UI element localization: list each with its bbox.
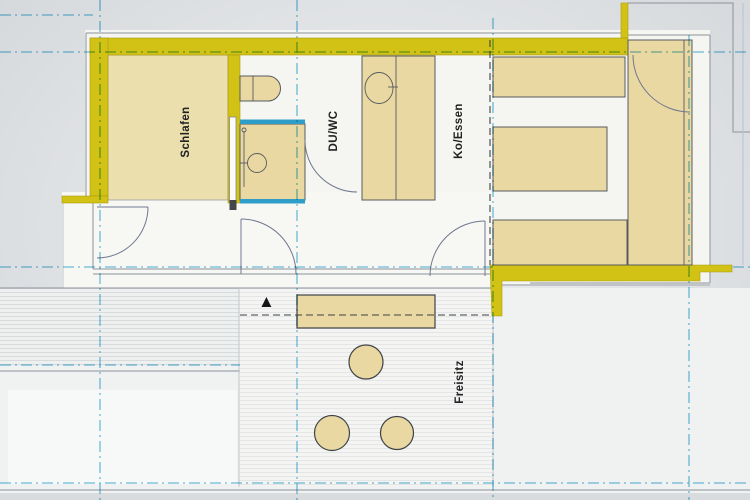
wall-left-stub <box>62 196 108 203</box>
door-arc-corridor-mid <box>241 219 296 274</box>
shower-edge-top <box>240 120 305 125</box>
shower-edge-bottom <box>240 199 305 204</box>
wardrobe-strip <box>628 40 692 265</box>
bathroom-fixtures <box>230 76 306 210</box>
floor-plan-photo: Schlafen DU/WC Ko/Essen Freisitz ▲ <box>0 0 750 500</box>
room-label-duwc: DU/WC <box>324 81 344 181</box>
room-label-schlafen: Schlafen <box>176 82 196 182</box>
sliding-door-panel <box>230 117 237 202</box>
freisitz-seat-1 <box>349 345 383 379</box>
table <box>493 127 607 191</box>
bench-bottom <box>493 220 627 265</box>
kitchen-block <box>362 56 435 200</box>
kitchen-counter <box>362 56 435 200</box>
north-arrow-icon: ▲ <box>258 293 275 310</box>
door-arc-corridor-left <box>97 207 148 258</box>
floor-plan-canvas <box>0 0 750 500</box>
freisitz-furniture <box>297 295 435 451</box>
wall-bottom-right <box>490 265 732 316</box>
seating-group <box>493 40 692 265</box>
room-label-freisitz: Freisitz <box>450 332 470 432</box>
freisitz-seat-3 <box>381 417 414 450</box>
wall-left <box>90 38 108 196</box>
room-schlafen-floor <box>108 55 228 200</box>
room-label-koessen: Ko/Essen <box>449 81 469 181</box>
freisitz-seat-2 <box>315 416 350 451</box>
bench-top <box>493 57 625 97</box>
shower-tray <box>240 124 305 200</box>
sliding-door-cap <box>230 200 237 210</box>
toilet <box>240 76 280 101</box>
door-arc-koessen <box>430 221 485 276</box>
wall-pier-top-right <box>621 3 628 38</box>
freisitz-bench <box>297 295 435 328</box>
